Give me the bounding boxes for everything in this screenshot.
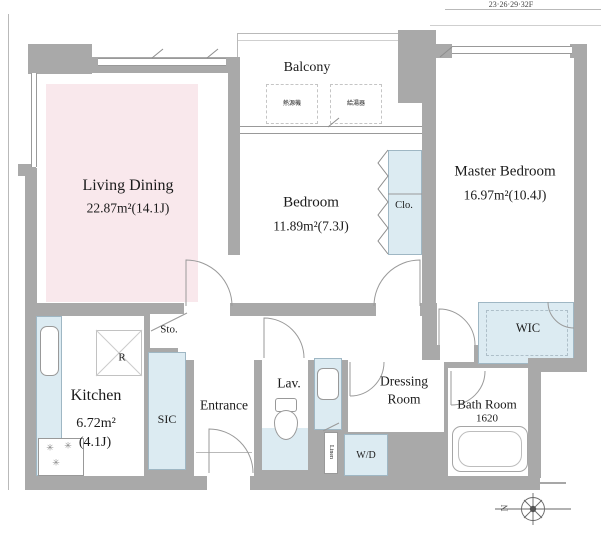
frame-line-left: [8, 14, 9, 490]
sic-label: SIC: [158, 413, 177, 425]
balcony-rail-left: [237, 33, 238, 57]
entrance-floor: [194, 352, 254, 490]
bath-size: 1620: [476, 414, 498, 425]
master-area: 16.97m²(10.4J): [464, 188, 547, 202]
closet-label: Clo.: [395, 201, 413, 212]
bedroom-name: Bedroom: [283, 196, 339, 211]
balcony-unit-1-label: 熱源機: [283, 101, 301, 107]
floors-note: 23·26·29·32F: [489, 1, 533, 9]
frame-line-top-1: [445, 9, 601, 10]
right-outer-wall: [574, 44, 587, 360]
bottom-wall-right: [250, 476, 540, 490]
living-left-window: [31, 73, 37, 167]
vanity-sink: [317, 368, 339, 400]
kitchen-area-2: (4.1J): [79, 436, 111, 450]
balcony-unit-2-label: 給湯器: [347, 101, 365, 107]
living-name: Living Dining: [82, 178, 173, 194]
wic-label: WIC: [516, 322, 540, 335]
storage-label: Sto.: [160, 325, 177, 336]
master-top-wall: [436, 44, 452, 58]
entrance-label: Entrance: [200, 398, 248, 412]
bedroom-door-opening: [376, 303, 420, 316]
bath-name: Bath Room: [457, 398, 517, 411]
entrance-step-line: [196, 452, 252, 453]
dressing-label-2: Room: [387, 392, 420, 406]
living-area: 22.87m²(14.1J): [87, 201, 170, 215]
master-door-opening: [440, 345, 474, 362]
frame-line-top-2: [430, 25, 601, 26]
living-top-window: [98, 58, 226, 66]
bedroom-top-window: [240, 126, 422, 134]
bath-right-wall: [528, 358, 540, 490]
living-balcony-divider: [228, 57, 240, 255]
sic-floor: [148, 352, 186, 470]
stove-burner-icon: ✳: [64, 443, 72, 452]
washer-label: W/D: [356, 451, 375, 461]
kitchen-stove: [38, 438, 84, 476]
master-name: Master Bedroom: [454, 165, 555, 180]
floor-plan: ✳ ✳ ✳: [0, 0, 601, 533]
dressing-label-1: Dressing: [380, 374, 428, 388]
kitchen-name: Kitchen: [71, 388, 122, 404]
bottom-wall-kitchen: [25, 476, 207, 490]
living-door-opening: [184, 303, 230, 316]
master-top-window: [452, 46, 572, 54]
bathtub-inner: [458, 431, 522, 467]
compass-north-label: N: [501, 505, 511, 512]
stove-burner-icon: ✳: [52, 460, 60, 469]
refrigerator-label: R: [118, 353, 125, 364]
balcony-label: Balcony: [284, 61, 331, 75]
linen-label: Linen: [328, 445, 334, 459]
kitchen-sink: [40, 326, 59, 376]
pillar-top-right: [398, 30, 436, 103]
kitchen-area-1: 6.72m²: [76, 417, 116, 431]
master-left-wall: [422, 100, 436, 350]
lavatory-label: Lav.: [277, 376, 301, 390]
stove-burner-icon: ✳: [46, 445, 54, 454]
bedroom-area: 11.89m²(7.3J): [273, 219, 349, 233]
